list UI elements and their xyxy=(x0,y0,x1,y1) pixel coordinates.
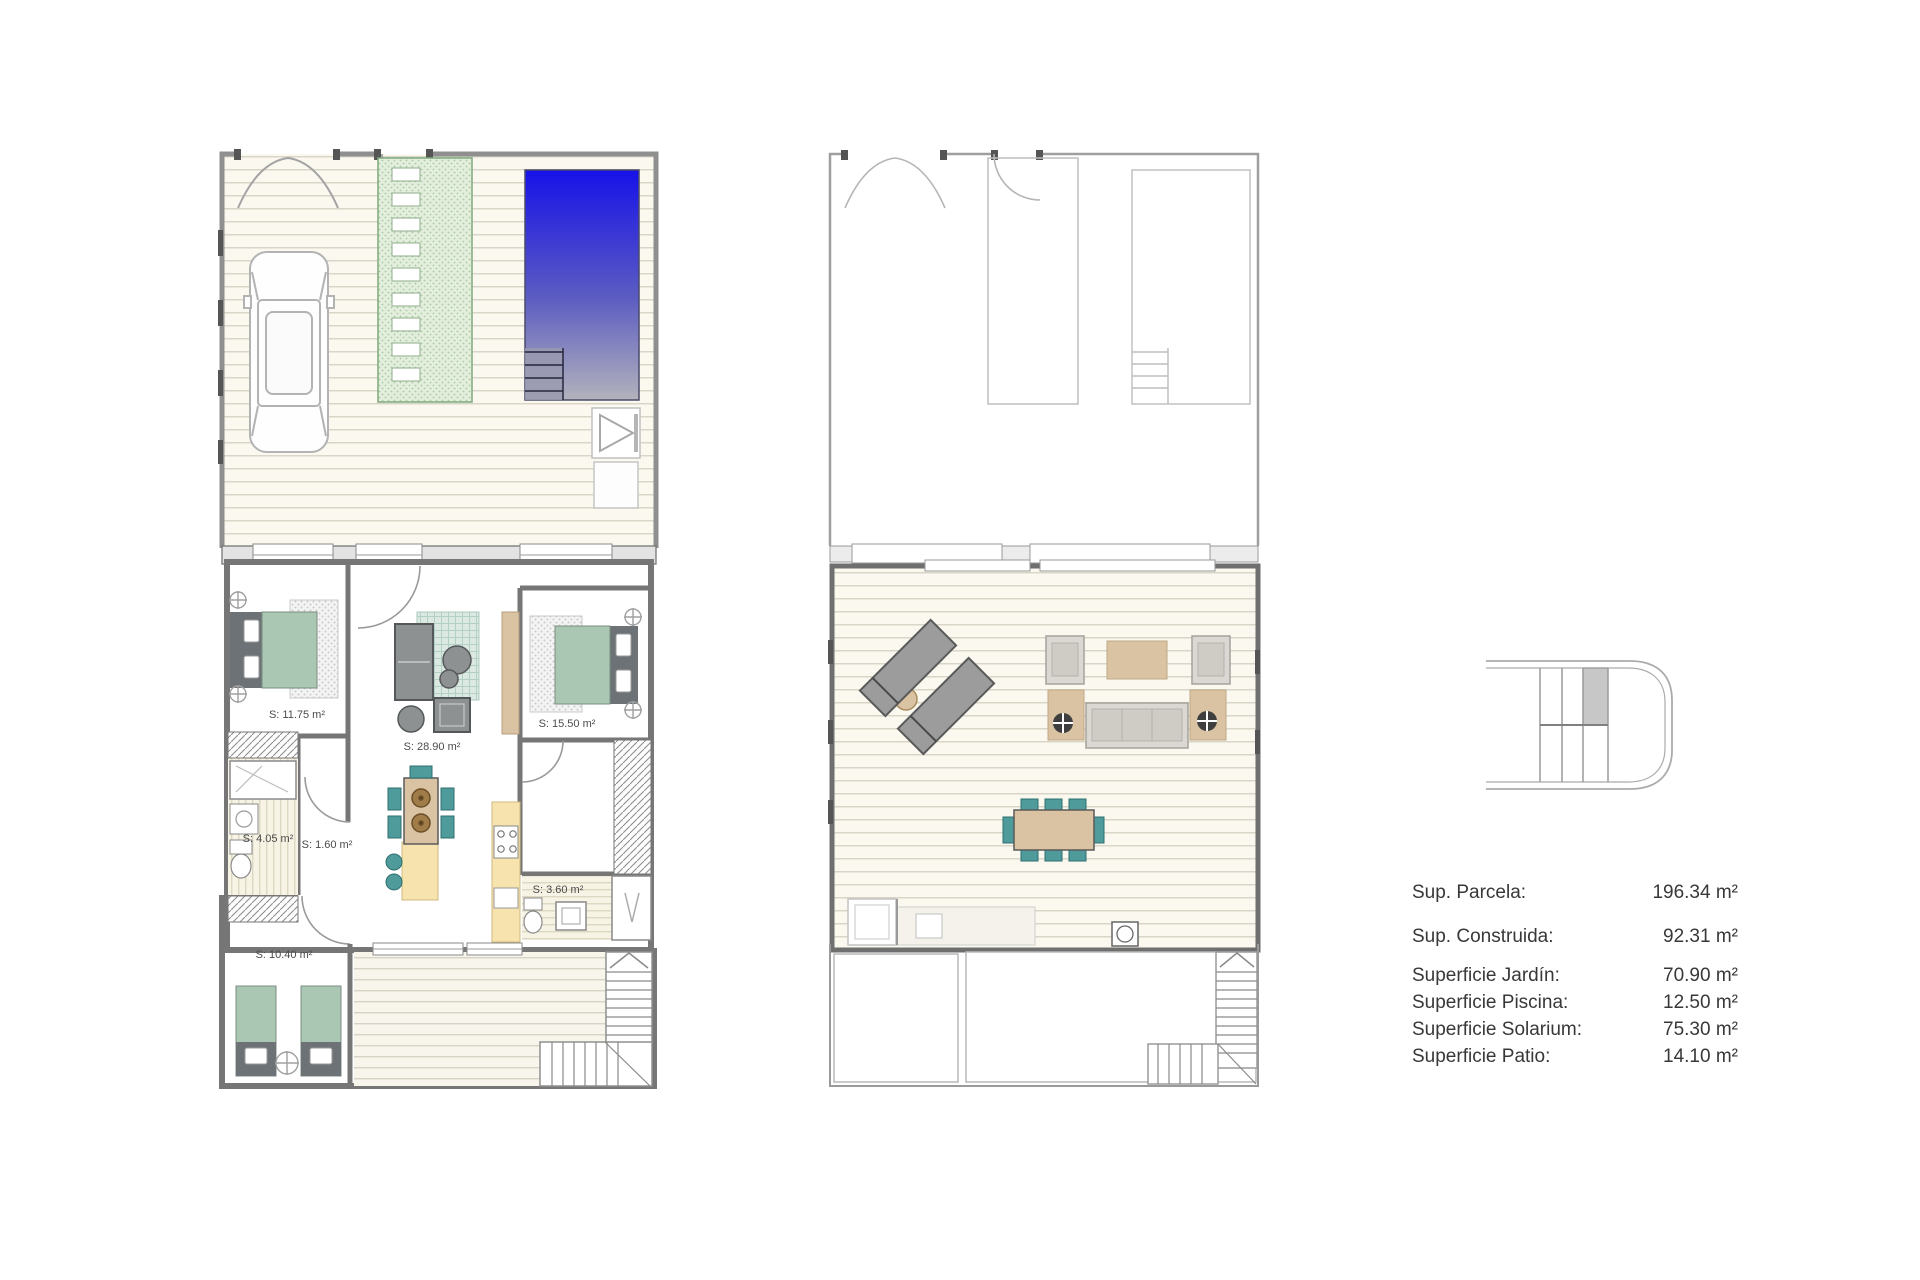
shower xyxy=(612,876,651,940)
island-counter xyxy=(402,842,438,900)
wardrobe xyxy=(228,732,298,758)
legend-value: 70.90 m² xyxy=(1663,965,1738,987)
area-legend: Sup. Parcela: 196.34 m² Sup. Construida:… xyxy=(1412,882,1738,1073)
highlighted-unit xyxy=(1583,668,1608,725)
legend-row-piscina: Superficie Piscina: 12.50 m² xyxy=(1412,992,1738,1014)
room-area-label: S: 1.60 m² xyxy=(302,839,353,851)
washer xyxy=(230,804,258,834)
wardrobe xyxy=(614,740,651,874)
toilet-tank xyxy=(524,898,542,910)
pillow xyxy=(244,656,259,678)
first-floor-plan xyxy=(828,150,1260,1086)
legend-value: 14.10 m² xyxy=(1663,1046,1738,1068)
swimming-pool xyxy=(525,170,639,400)
wardrobe xyxy=(228,896,298,922)
solarium-windows xyxy=(925,560,1215,571)
toilet xyxy=(524,911,542,933)
pillow xyxy=(244,620,259,642)
legend-label: Superficie Piscina: xyxy=(1412,992,1568,1014)
tv-cabinet xyxy=(502,612,519,734)
solarium-deck xyxy=(832,566,1258,950)
sink xyxy=(494,888,518,908)
floor-plans-drawing: S: 11.75 m² S: 28.90 m² S: 15. xyxy=(0,0,1920,1280)
garden-storage-box xyxy=(594,462,638,508)
pouf xyxy=(398,706,424,732)
legend-value: 196.34 m² xyxy=(1652,882,1738,904)
legend-label: Superficie Solarium: xyxy=(1412,1019,1582,1041)
legend-row-solarium: Superficie Solarium: 75.30 m² xyxy=(1412,1019,1738,1041)
floor-plan-sheet: S: 11.75 m² S: 28.90 m² S: 15. xyxy=(0,0,1920,1280)
sink-unit xyxy=(556,902,586,930)
armchair xyxy=(434,698,470,732)
stepping-stones xyxy=(392,168,420,381)
legend-label: Sup. Construida: xyxy=(1412,926,1554,948)
garden-path xyxy=(378,158,472,402)
room-area-label: S: 11.75 m² xyxy=(269,709,325,721)
legend-value: 75.30 m² xyxy=(1663,1019,1738,1041)
dining-table xyxy=(1014,810,1094,850)
double-bed xyxy=(262,612,317,688)
room-area-label: S: 10.40 m² xyxy=(256,949,313,961)
room-area-label: S: 3.60 m² xyxy=(533,884,584,896)
ghost-path xyxy=(988,158,1078,404)
pillow xyxy=(616,634,631,656)
coffee-table xyxy=(1107,641,1167,679)
ghost-door-swing-icon xyxy=(994,154,1040,200)
legend-value: 92.31 m² xyxy=(1663,926,1738,948)
room-area-label: S: 28.90 m² xyxy=(404,741,461,753)
pouf xyxy=(440,670,458,688)
ground-floor-plan: S: 11.75 m² S: 28.90 m² S: 15. xyxy=(218,149,656,1086)
ghost-boundary xyxy=(830,154,1258,546)
legend-label: Superficie Patio: xyxy=(1412,1046,1550,1068)
ghost-pool xyxy=(1132,170,1250,404)
stairwell xyxy=(1148,952,1257,1084)
bathroom-1 xyxy=(228,732,298,895)
toilet xyxy=(231,854,251,878)
legend-label: Superficie Jardín: xyxy=(1412,965,1560,987)
legend-row-construida: Sup. Construida: 92.31 m² xyxy=(1412,926,1738,948)
pillow xyxy=(616,670,631,692)
dining-table xyxy=(404,778,438,844)
double-bed xyxy=(555,626,610,704)
legend-row-patio: Superficie Patio: 14.10 m² xyxy=(1412,1046,1738,1068)
kitchen-counter xyxy=(492,802,520,942)
ghost-gate-swing-icon xyxy=(845,158,945,208)
legend-row-parcela: Sup. Parcela: 196.34 m² xyxy=(1412,882,1738,904)
legend-label: Sup. Parcela: xyxy=(1412,882,1526,904)
room-area-label: S: 4.05 m² xyxy=(243,833,294,845)
car-icon xyxy=(244,252,334,452)
garden-access-marker xyxy=(592,408,640,458)
legend-row-jardin: Superficie Jardín: 70.90 m² xyxy=(1412,965,1738,987)
legend-value: 12.50 m² xyxy=(1663,992,1738,1014)
key-plan xyxy=(1486,661,1672,789)
room-area-label: S: 15.50 m² xyxy=(539,718,596,730)
ceiling-light-icon xyxy=(275,1051,299,1075)
